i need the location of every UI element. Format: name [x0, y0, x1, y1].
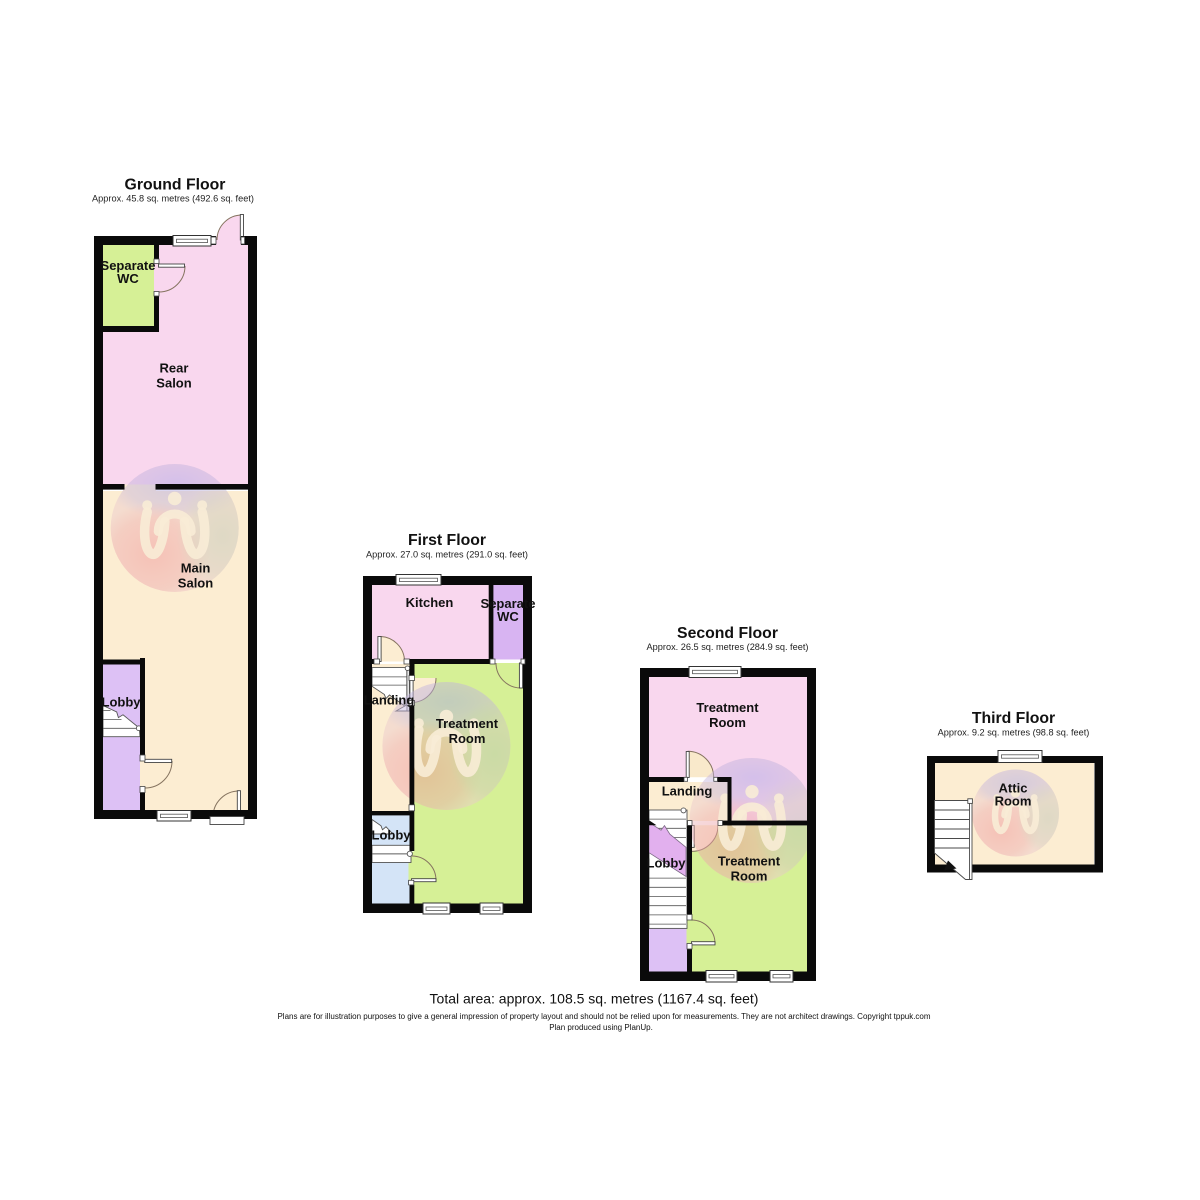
svg-text:Approx. 9.2 sq. metres (98.8 s: Approx. 9.2 sq. metres (98.8 sq. feet) — [938, 728, 1090, 738]
svg-text:Room: Room — [731, 869, 768, 884]
svg-text:Plans are for illustration pur: Plans are for illustration purposes to g… — [277, 1012, 930, 1021]
svg-text:Room: Room — [995, 794, 1032, 809]
svg-text:Treatment: Treatment — [718, 854, 781, 869]
svg-text:Main: Main — [181, 561, 211, 576]
svg-text:Lobby: Lobby — [647, 855, 687, 870]
svg-text:Lobby: Lobby — [102, 694, 142, 709]
svg-text:Rear: Rear — [160, 361, 189, 376]
svg-text:First Floor: First Floor — [408, 532, 486, 549]
svg-text:Approx. 26.5 sq. metres (284.9: Approx. 26.5 sq. metres (284.9 sq. feet) — [647, 642, 809, 652]
svg-text:Kitchen: Kitchen — [406, 595, 454, 610]
svg-text:Treatment: Treatment — [696, 700, 759, 715]
svg-text:Salon: Salon — [178, 576, 213, 591]
svg-text:Second Floor: Second Floor — [677, 625, 778, 642]
svg-text:Room: Room — [449, 731, 486, 746]
svg-text:Approx. 27.0 sq. metres (291.0: Approx. 27.0 sq. metres (291.0 sq. feet) — [366, 550, 528, 560]
svg-text:Landing: Landing — [662, 783, 713, 798]
svg-text:Total area: approx. 108.5 sq.: Total area: approx. 108.5 sq. metres (11… — [430, 991, 759, 1007]
svg-text:Lobby: Lobby — [372, 828, 412, 843]
svg-text:Landing: Landing — [364, 692, 415, 707]
svg-text:Treatment: Treatment — [436, 716, 499, 731]
svg-text:WC: WC — [497, 609, 519, 624]
svg-text:WC: WC — [117, 271, 139, 286]
svg-text:Room: Room — [709, 715, 746, 730]
svg-text:Ground Floor: Ground Floor — [125, 177, 226, 194]
svg-text:Third Floor: Third Floor — [972, 710, 1055, 727]
svg-text:Plan produced using PlanUp.: Plan produced using PlanUp. — [549, 1023, 653, 1032]
svg-text:Approx. 45.8 sq. metres (492.6: Approx. 45.8 sq. metres (492.6 sq. feet) — [92, 194, 254, 204]
svg-text:Salon: Salon — [156, 376, 191, 391]
